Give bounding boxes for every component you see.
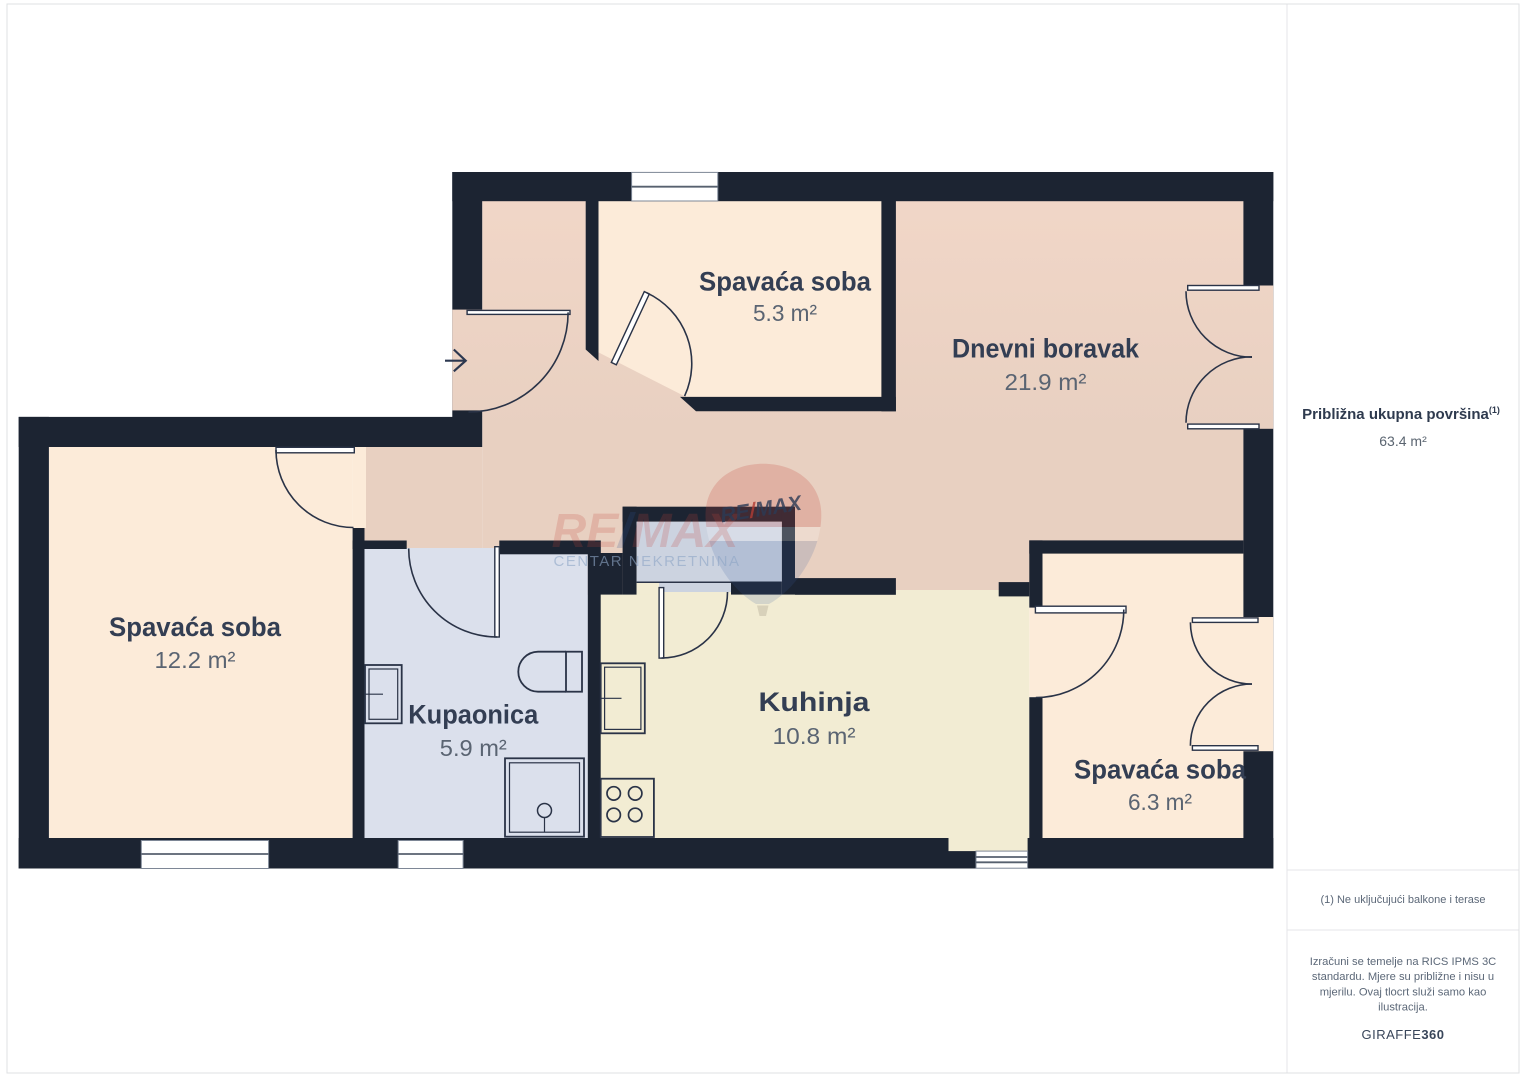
svg-text:Kuhinja: Kuhinja bbox=[759, 687, 871, 717]
svg-text:10.8 m²: 10.8 m² bbox=[773, 723, 856, 749]
svg-text:Spavaća soba: Spavaća soba bbox=[699, 267, 872, 297]
svg-text:Kupaonica: Kupaonica bbox=[408, 699, 539, 729]
svg-text:5.9 m²: 5.9 m² bbox=[440, 735, 507, 761]
svg-text:RE/MAX: RE/MAX bbox=[552, 505, 742, 558]
svg-text:Spavaća soba: Spavaća soba bbox=[1074, 755, 1247, 785]
svg-text:Približna ukupna površina(1): Približna ukupna površina(1) bbox=[1302, 405, 1500, 423]
svg-text:mjerilu. Ovaj tlocrt služi sam: mjerilu. Ovaj tlocrt služi samo kao bbox=[1320, 986, 1487, 998]
svg-text:standardu. Mjere su približne: standardu. Mjere su približne i nisu u bbox=[1312, 971, 1494, 983]
svg-text:GIRAFFE360: GIRAFFE360 bbox=[1361, 1027, 1444, 1042]
svg-text:Spavaća soba: Spavaća soba bbox=[109, 612, 282, 642]
svg-text:Dnevni boravak: Dnevni boravak bbox=[952, 334, 1140, 364]
svg-text:63.4 m²: 63.4 m² bbox=[1379, 433, 1427, 449]
svg-text:21.9 m²: 21.9 m² bbox=[1005, 369, 1087, 395]
svg-text:(1) Ne uključujući balkone i t: (1) Ne uključujući balkone i terase bbox=[1320, 894, 1485, 906]
svg-text:12.2 m²: 12.2 m² bbox=[155, 647, 236, 673]
svg-text:5.3 m²: 5.3 m² bbox=[753, 300, 817, 326]
svg-text:ilustracija.: ilustracija. bbox=[1378, 1002, 1428, 1014]
svg-text:CENTAR NEKRETNINA: CENTAR NEKRETNINA bbox=[554, 553, 741, 570]
svg-text:Izračuni se temelje na RICS IP: Izračuni se temelje na RICS IPMS 3C bbox=[1310, 956, 1497, 968]
svg-text:6.3 m²: 6.3 m² bbox=[1128, 789, 1192, 815]
